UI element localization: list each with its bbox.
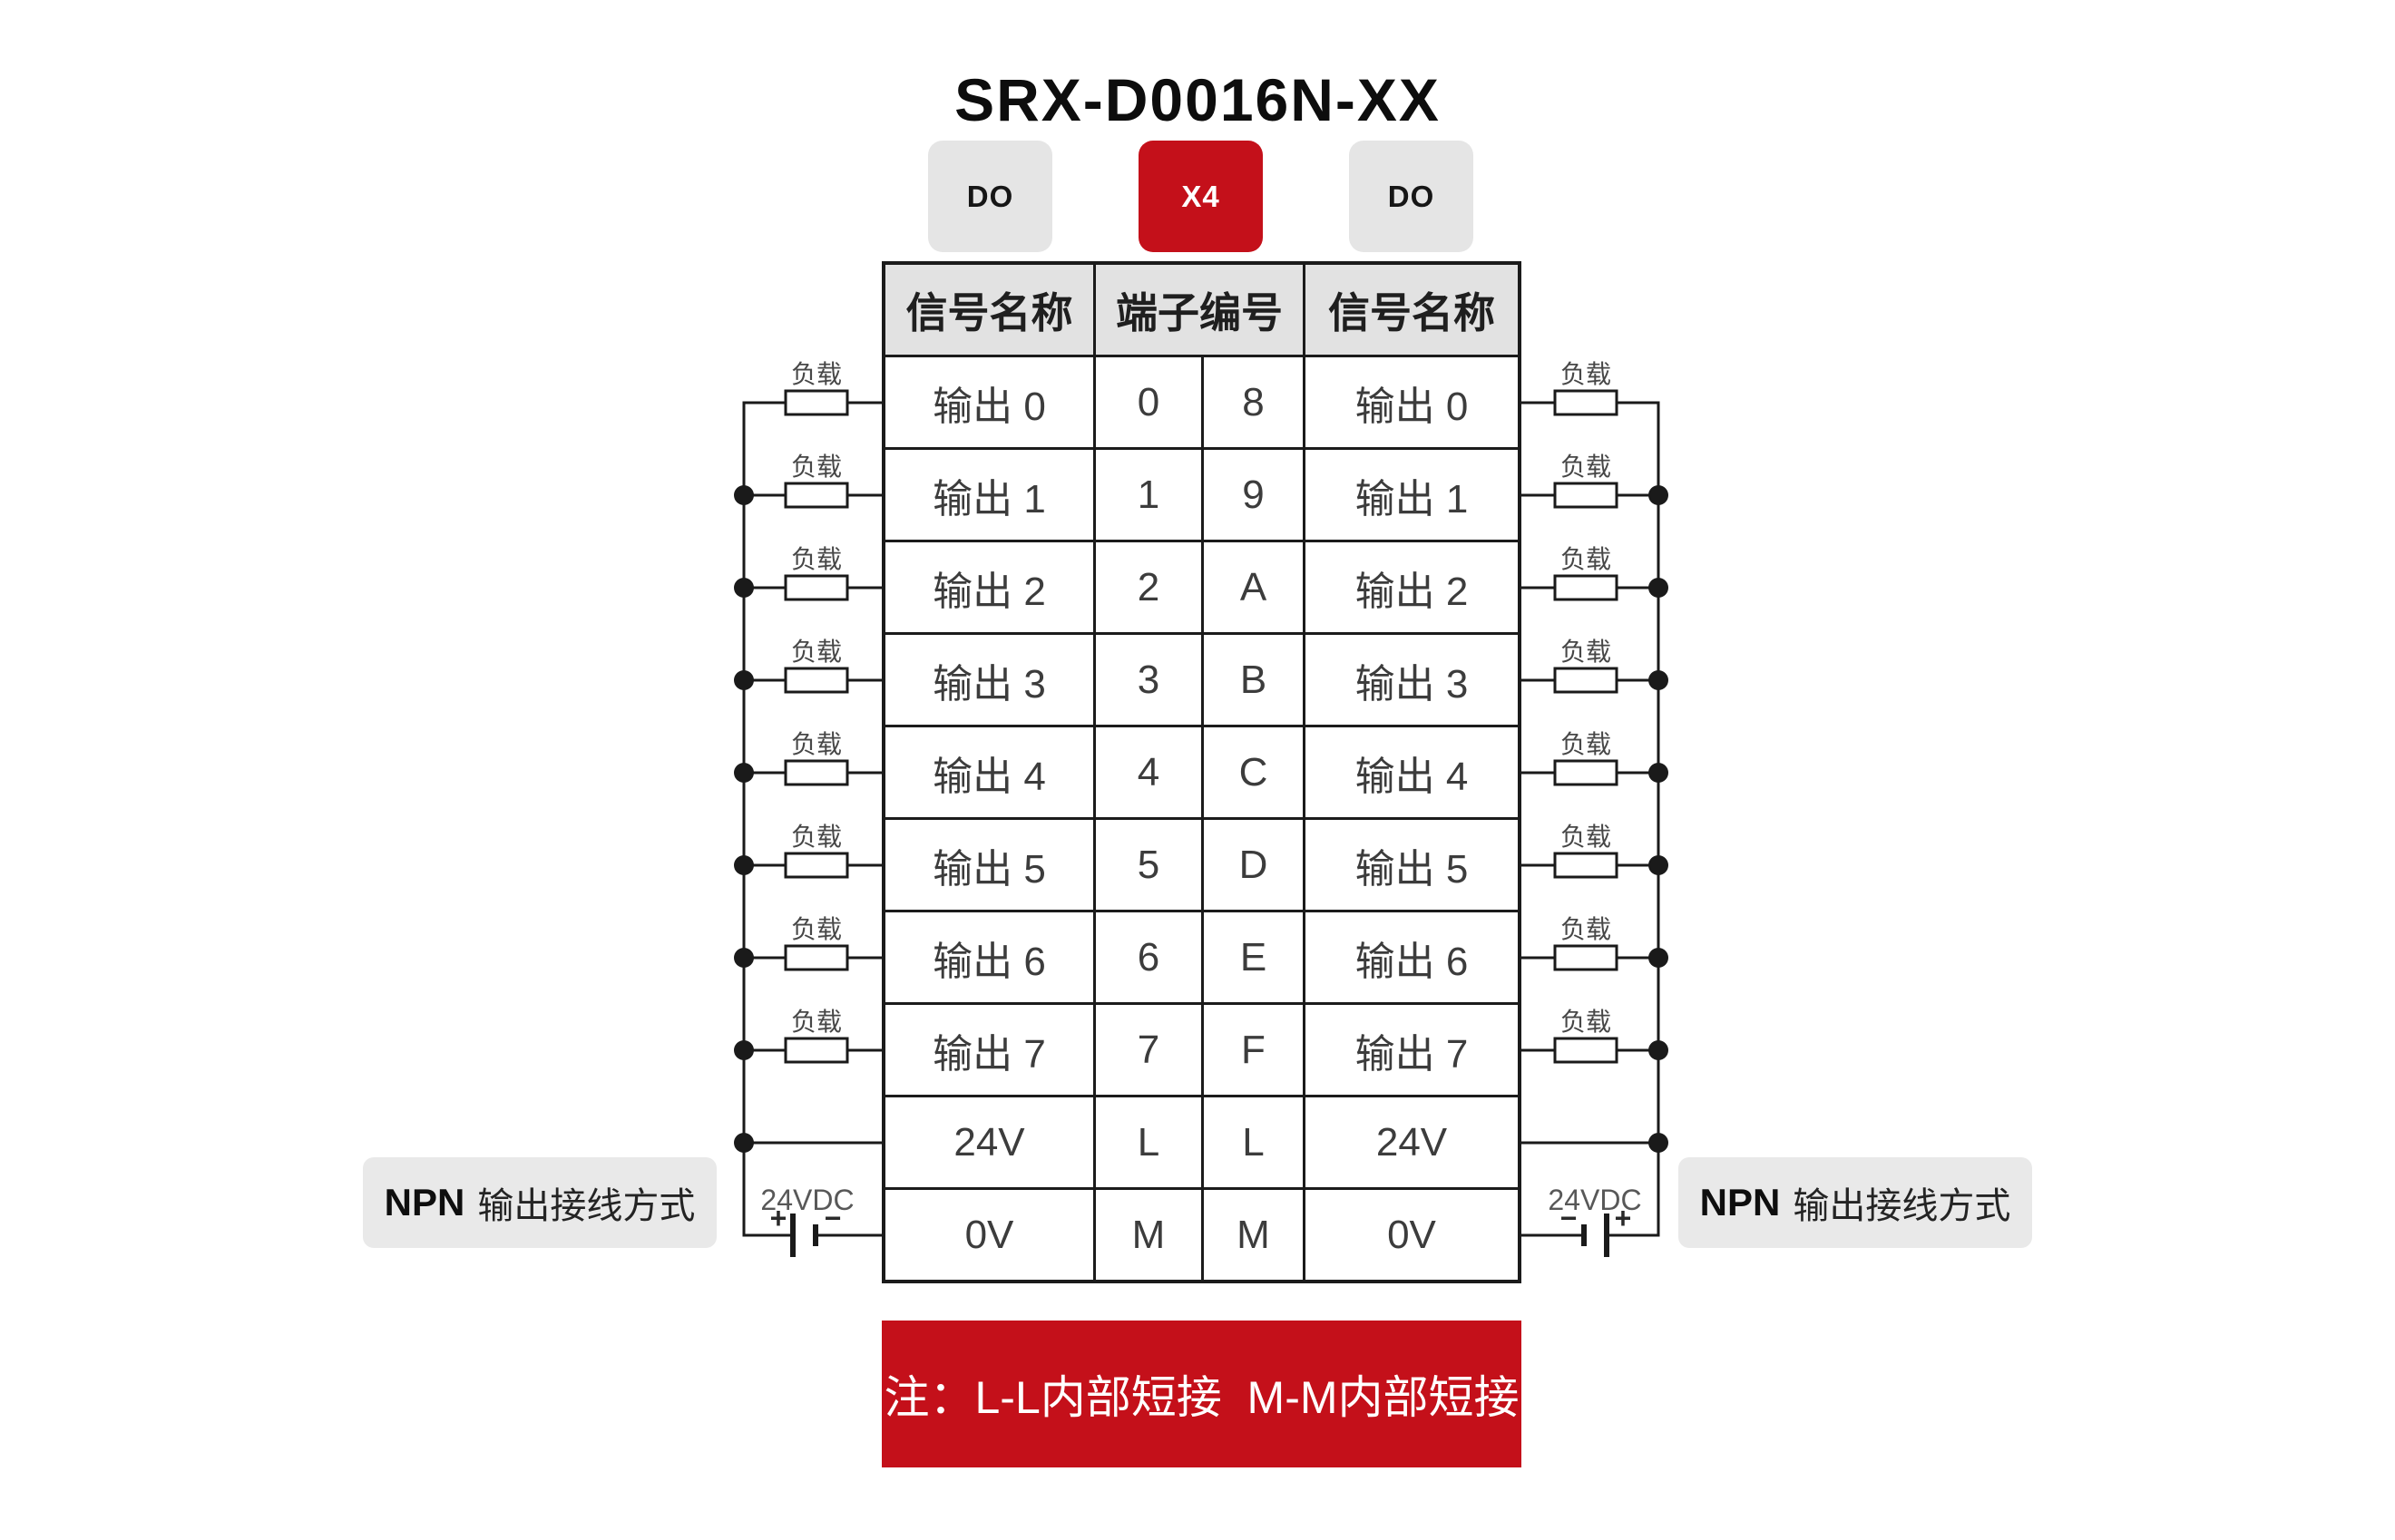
load-resistor	[786, 946, 847, 970]
junction-dot	[1648, 763, 1668, 783]
load-resistor	[786, 761, 847, 785]
signal-cell: 0V	[885, 1190, 1093, 1280]
load-resistor	[786, 1038, 847, 1062]
load-resistor	[786, 576, 847, 599]
load-resistor	[1555, 483, 1617, 507]
battery-short-plate	[813, 1224, 818, 1246]
signal-cell: 输出 2	[1303, 542, 1518, 632]
load-label: 负载	[791, 1008, 842, 1036]
table-header-row: 信号名称 端子编号 信号名称	[885, 265, 1518, 355]
junction-dot	[734, 670, 754, 690]
signal-cell: 输出 7	[1303, 1005, 1518, 1095]
terminal-cell: B	[1201, 635, 1303, 725]
signal-cell: 输出 3	[1303, 635, 1518, 725]
terminal-cell: 1	[1093, 450, 1201, 540]
junction-dot	[734, 578, 754, 598]
load-resistor	[786, 853, 847, 877]
signal-cell: 输出 6	[1303, 912, 1518, 1002]
signal-cell: 24V	[1303, 1097, 1518, 1187]
load-label: 负载	[1560, 730, 1611, 758]
table-row: 0V M M 0V	[885, 1187, 1518, 1280]
signal-cell: 输出 1	[1303, 450, 1518, 540]
table-row: 输出 2 2 A 输出 2	[885, 540, 1518, 632]
junction-dot	[1648, 1133, 1668, 1153]
load-label: 负载	[791, 638, 842, 666]
header-signal-left: 信号名称	[885, 265, 1093, 355]
terminal-cell: E	[1201, 912, 1303, 1002]
junction-dot	[1648, 485, 1668, 505]
terminal-cell: M	[1093, 1190, 1201, 1280]
load-label: 负载	[791, 730, 842, 758]
load-label: 负载	[1560, 453, 1611, 481]
load-label: 负载	[791, 453, 842, 481]
terminal-cell: 7	[1093, 1005, 1201, 1095]
load-label: 负载	[1560, 360, 1611, 388]
load-resistor	[786, 668, 847, 692]
load-label: 负载	[1560, 915, 1611, 943]
note-banner: 注：L-L内部短接 M-M内部短接	[882, 1321, 1521, 1467]
battery-long-plate	[790, 1213, 796, 1257]
table-row: 输出 1 1 9 输出 1	[885, 447, 1518, 540]
junction-dot	[1648, 855, 1668, 875]
load-resistor	[1555, 1038, 1617, 1062]
terminal-cell: 8	[1201, 357, 1303, 447]
load-label: 负载	[1560, 545, 1611, 573]
signal-cell: 输出 4	[885, 727, 1093, 817]
table-row: 输出 6 6 E 输出 6	[885, 910, 1518, 1002]
junction-dot	[1648, 670, 1668, 690]
header-terminal-number: 端子编号	[1093, 265, 1303, 355]
load-resistor	[1555, 853, 1617, 877]
junction-dot	[734, 948, 754, 968]
terminal-cell: L	[1201, 1097, 1303, 1187]
load-label: 负载	[1560, 1008, 1611, 1036]
npn-prefix: NPN	[385, 1181, 465, 1224]
signal-cell: 输出 6	[885, 912, 1093, 1002]
terminal-cell: A	[1201, 542, 1303, 632]
signal-cell: 输出 4	[1303, 727, 1518, 817]
signal-cell: 输出 1	[885, 450, 1093, 540]
wiring-method-text: 输出接线方式	[477, 1176, 695, 1229]
right-circuit: 负载 负载 负载 负载 负载 负载 负载 负载 − + 24VDC	[1521, 360, 1668, 1257]
header-signal-right: 信号名称	[1303, 265, 1518, 355]
table-row: 输出 5 5 D 输出 5	[885, 817, 1518, 910]
junction-dot	[1648, 578, 1668, 598]
right-bus-wire	[1521, 403, 1658, 1235]
load-resistor	[1555, 391, 1617, 414]
terminal-cell: 3	[1093, 635, 1201, 725]
load-label: 负载	[791, 360, 842, 388]
wiring-method-label-left: NPN 输出接线方式	[363, 1157, 717, 1248]
load-resistor	[1555, 946, 1617, 970]
left-circuit: 负载 负载 负载 负载 负载 负载 负载 负载 + − 24VDC	[734, 360, 882, 1257]
terminal-cell: 5	[1093, 820, 1201, 910]
terminal-cell: L	[1093, 1097, 1201, 1187]
load-label: 负载	[791, 823, 842, 851]
signal-cell: 输出 5	[885, 820, 1093, 910]
junction-dot	[1648, 1040, 1668, 1060]
signal-cell: 输出 0	[1303, 357, 1518, 447]
battery-short-plate	[1581, 1224, 1587, 1246]
junction-dot	[1648, 948, 1668, 968]
terminal-cell: M	[1201, 1190, 1303, 1280]
terminal-cell: 2	[1093, 542, 1201, 632]
load-label: 负载	[1560, 823, 1611, 851]
terminal-cell: 0	[1093, 357, 1201, 447]
load-label: 负载	[1560, 638, 1611, 666]
signal-cell: 0V	[1303, 1190, 1518, 1280]
table-row: 输出 3 3 B 输出 3	[885, 632, 1518, 725]
load-resistor	[786, 391, 847, 414]
battery-long-plate	[1604, 1213, 1609, 1257]
junction-dot	[734, 485, 754, 505]
wiring-method-label-right: NPN 输出接线方式	[1678, 1157, 2032, 1248]
load-resistor	[1555, 668, 1617, 692]
signal-cell: 输出 2	[885, 542, 1093, 632]
signal-cell: 输出 7	[885, 1005, 1093, 1095]
table-row: 输出 4 4 C 输出 4	[885, 725, 1518, 817]
terminal-cell: 6	[1093, 912, 1201, 1002]
table-row: 输出 7 7 F 输出 7	[885, 1002, 1518, 1095]
signal-cell: 输出 3	[885, 635, 1093, 725]
terminal-table: 信号名称 端子编号 信号名称 输出 0 0 8 输出 0 输出 1 1 9 输出…	[882, 261, 1521, 1283]
terminal-cell: D	[1201, 820, 1303, 910]
terminal-cell: F	[1201, 1005, 1303, 1095]
terminal-cell: 4	[1093, 727, 1201, 817]
junction-dot	[734, 1133, 754, 1153]
wiring-method-text: 输出接线方式	[1793, 1176, 2010, 1229]
npn-prefix: NPN	[1700, 1181, 1781, 1224]
signal-cell: 输出 5	[1303, 820, 1518, 910]
table-row: 24V L L 24V	[885, 1095, 1518, 1187]
psu-voltage-label: 24VDC	[760, 1184, 854, 1216]
left-bus-wire	[744, 403, 882, 1235]
load-label: 负载	[791, 545, 842, 573]
table-row: 输出 0 0 8 输出 0	[885, 355, 1518, 447]
junction-dot	[734, 855, 754, 875]
psu-voltage-label: 24VDC	[1548, 1184, 1641, 1216]
signal-cell: 24V	[885, 1097, 1093, 1187]
junction-dot	[734, 763, 754, 783]
terminal-cell: C	[1201, 727, 1303, 817]
load-resistor	[786, 483, 847, 507]
junction-dot	[734, 1040, 754, 1060]
load-resistor	[1555, 761, 1617, 785]
load-label: 负载	[791, 915, 842, 943]
terminal-cell: 9	[1201, 450, 1303, 540]
signal-cell: 输出 0	[885, 357, 1093, 447]
load-resistor	[1555, 576, 1617, 599]
